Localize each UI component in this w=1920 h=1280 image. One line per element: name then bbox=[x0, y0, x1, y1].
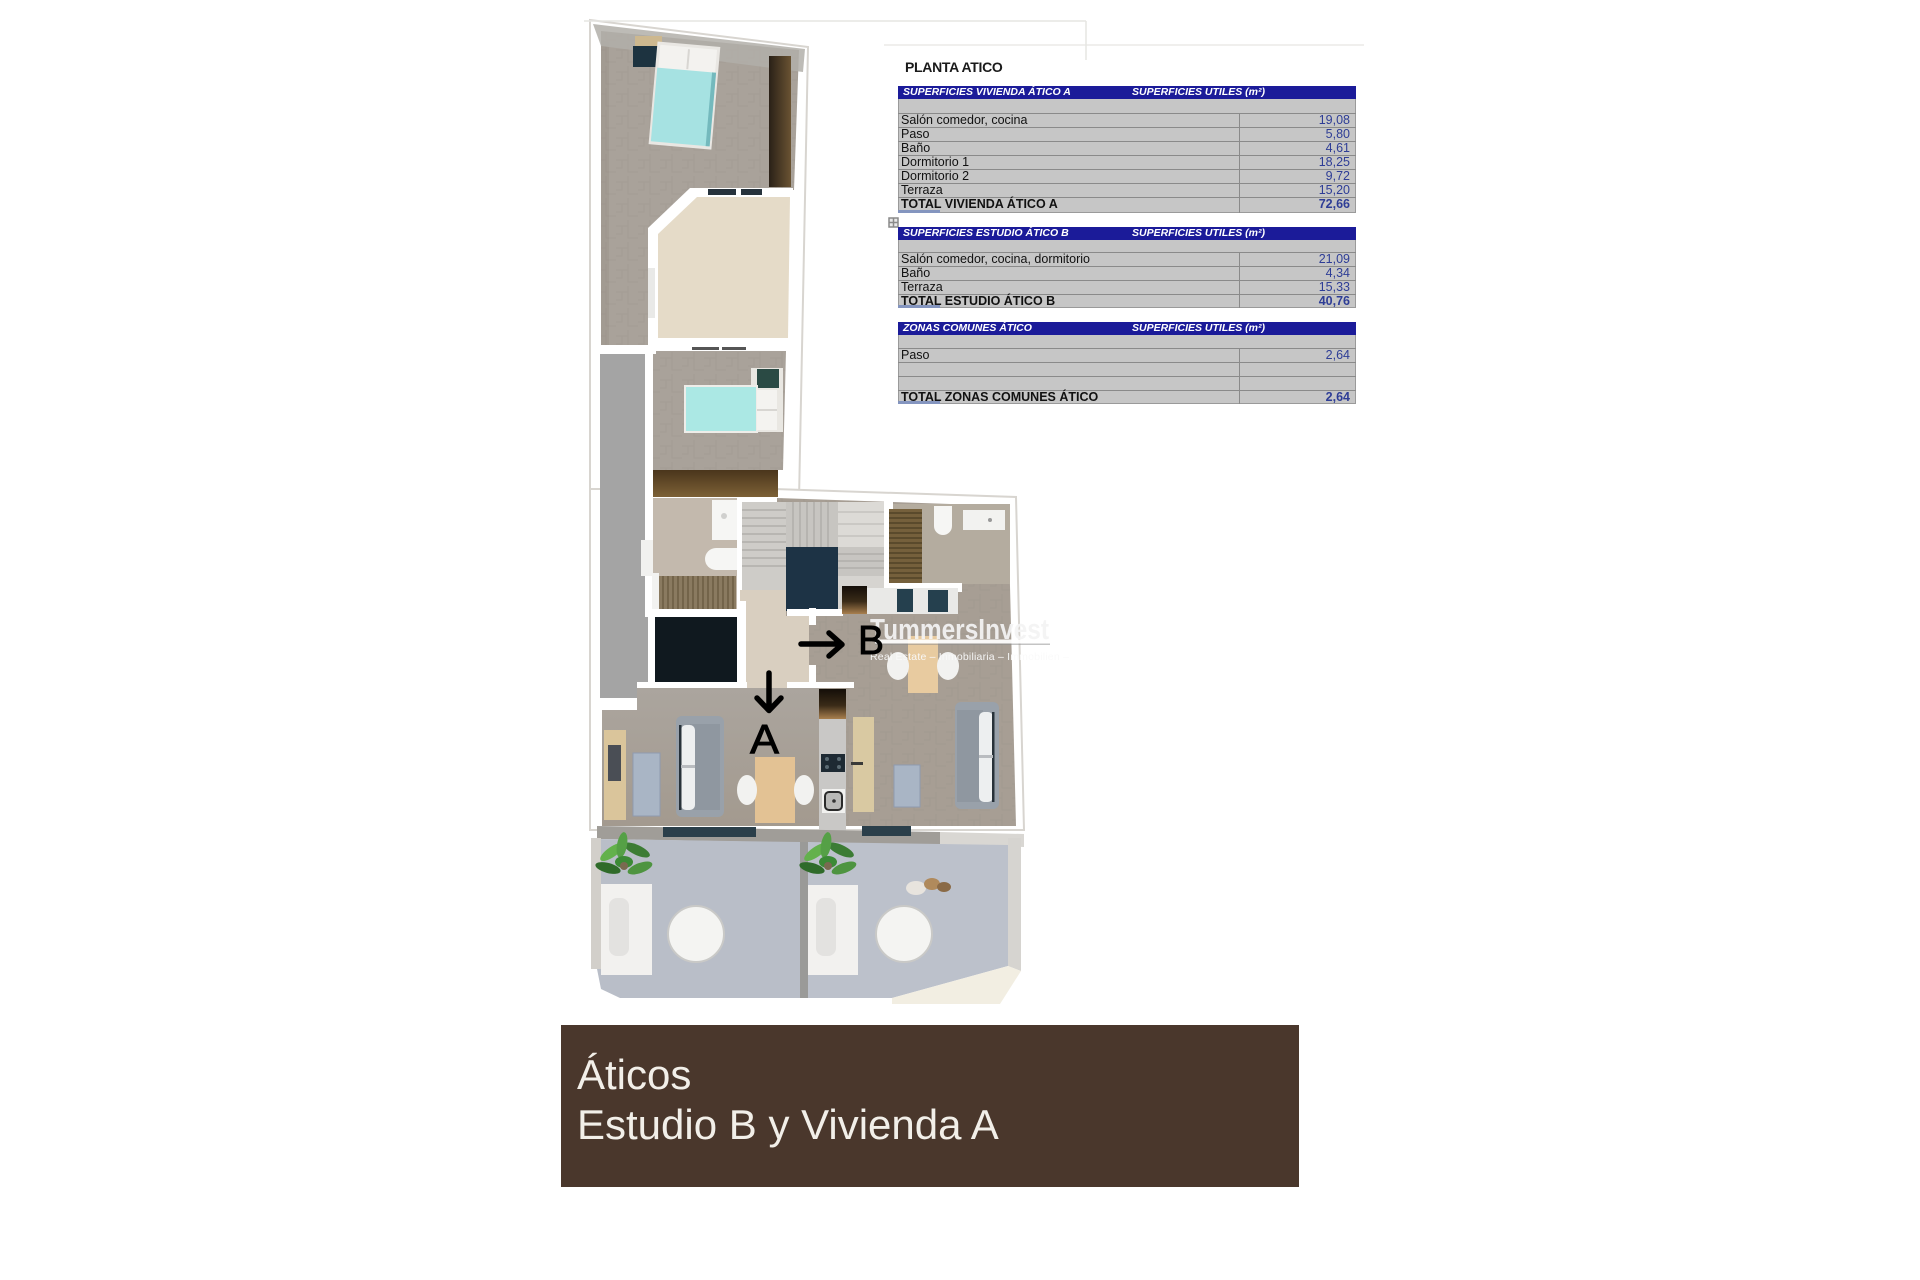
svg-text:A: A bbox=[750, 716, 780, 762]
svg-text:B: B bbox=[858, 617, 884, 663]
svg-text:Real Estate – Inmobiliaria – I: Real Estate – Inmobiliaria – Immobilien … bbox=[870, 651, 1069, 663]
